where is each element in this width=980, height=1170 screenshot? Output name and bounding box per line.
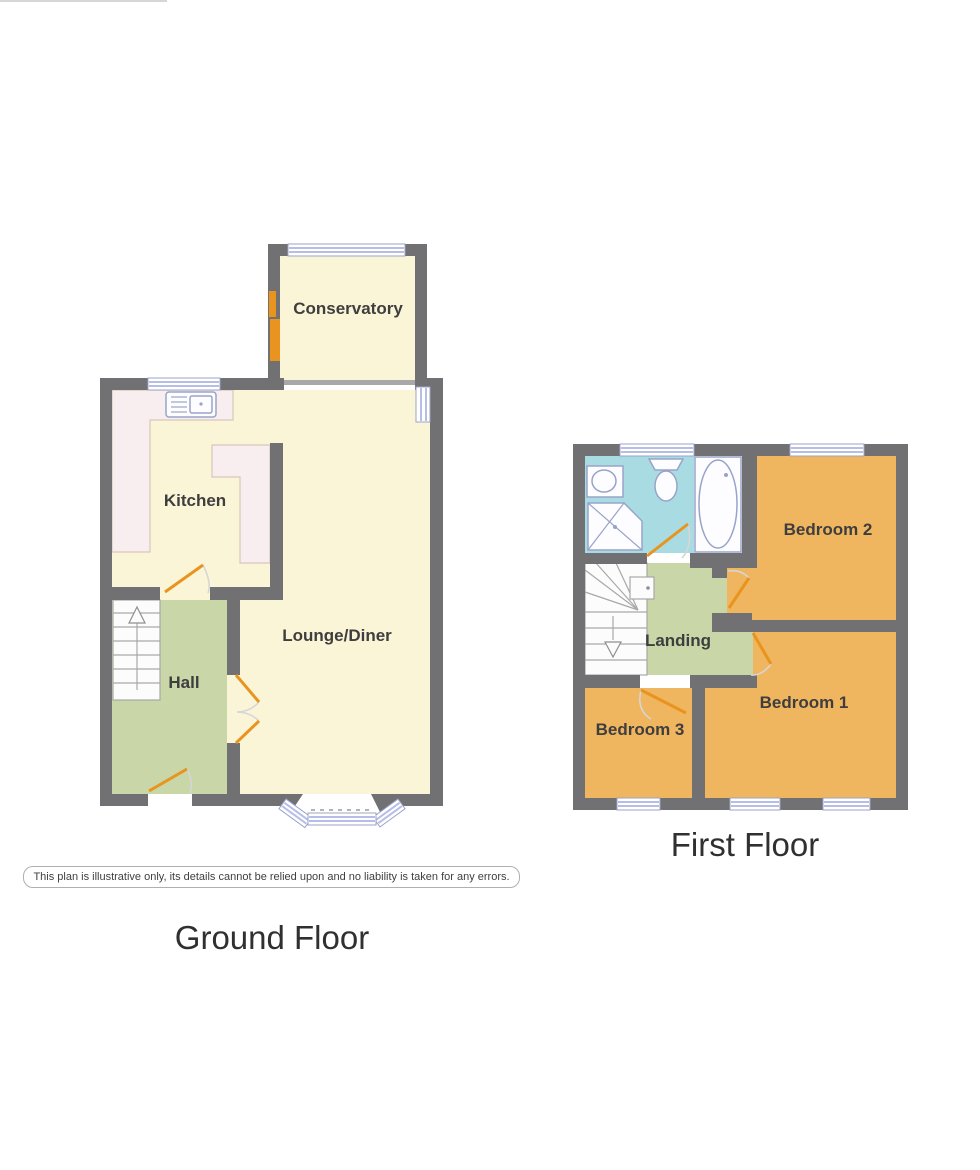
first-floor-title: First Floor bbox=[671, 826, 820, 864]
wall-segment bbox=[270, 443, 283, 587]
wall-segment bbox=[268, 244, 288, 256]
room-label-bedroom1: Bedroom 1 bbox=[760, 693, 849, 712]
wall-segment bbox=[870, 798, 908, 810]
wall-segment bbox=[100, 794, 148, 806]
disclaimer-note: This plan is illustrative only, its deta… bbox=[23, 866, 520, 888]
floorplan-page: Conservatory Kitchen Lounge/Diner Hall bbox=[0, 0, 980, 1170]
sink-icon bbox=[587, 466, 623, 497]
wall-segment bbox=[580, 675, 640, 688]
room-label-lounge: Lounge/Diner bbox=[282, 626, 392, 645]
floor-plan-canvas: Conservatory Kitchen Lounge/Diner Hall bbox=[0, 0, 980, 1170]
wall-segment bbox=[573, 444, 585, 810]
bedroom3-floor bbox=[585, 688, 692, 798]
wall-segment bbox=[192, 794, 285, 806]
room-label-bedroom3: Bedroom 3 bbox=[596, 720, 685, 739]
wall-segment bbox=[694, 444, 790, 456]
wall-segment bbox=[896, 444, 908, 810]
wall-segment bbox=[690, 553, 757, 568]
wall-segment bbox=[227, 743, 240, 794]
gf-staircase bbox=[113, 600, 160, 700]
room-label-hall: Hall bbox=[168, 673, 199, 692]
wall-segment bbox=[210, 587, 283, 600]
wall-segment bbox=[100, 587, 160, 600]
bedroom1-window bbox=[823, 798, 870, 810]
kitchen-sink-icon bbox=[166, 392, 216, 417]
wall-segment bbox=[712, 568, 727, 578]
ground-floor-plan: Conservatory Kitchen Lounge/Diner Hall bbox=[100, 244, 443, 828]
landing-cupboard bbox=[630, 577, 654, 599]
room-label-bedroom2: Bedroom 2 bbox=[784, 520, 873, 539]
conservatory-door bbox=[270, 319, 280, 361]
bedroom2-window bbox=[790, 444, 864, 456]
conservatory-door bbox=[269, 291, 276, 317]
wall-segment bbox=[405, 244, 427, 256]
wall-segment bbox=[752, 620, 896, 632]
bedroom1-window bbox=[730, 798, 780, 810]
ff-staircase bbox=[585, 563, 654, 675]
wall-segment bbox=[573, 798, 617, 810]
wall-segment bbox=[742, 456, 757, 568]
wall-segment bbox=[220, 378, 284, 390]
wall-segment bbox=[690, 675, 757, 688]
wall-segment bbox=[227, 600, 240, 675]
room-label-landing: Landing bbox=[645, 631, 711, 650]
wall-segment bbox=[430, 378, 443, 806]
wall-segment bbox=[415, 256, 427, 384]
wall-segment bbox=[692, 688, 705, 798]
bedroom3-window bbox=[617, 798, 660, 810]
room-divider-line bbox=[284, 380, 415, 385]
wall-segment bbox=[660, 798, 730, 810]
lounge-side-window bbox=[416, 387, 430, 422]
bath-icon bbox=[694, 456, 742, 553]
kitchen-window bbox=[148, 378, 220, 390]
landing-floor-extension bbox=[705, 632, 753, 675]
ground-floor-title: Ground Floor bbox=[175, 919, 369, 957]
conservatory-window bbox=[288, 244, 405, 256]
conservatory-floor bbox=[280, 256, 415, 380]
first-floor-plan: Bedroom 2 Landing Bedroom 3 Bedroom 1 bbox=[573, 444, 908, 810]
wall-segment bbox=[780, 798, 823, 810]
wall-segment bbox=[712, 613, 752, 632]
room-label-kitchen: Kitchen bbox=[164, 491, 226, 510]
room-label-conservatory: Conservatory bbox=[293, 299, 403, 318]
wall-segment bbox=[580, 553, 647, 564]
bathroom-window bbox=[620, 444, 694, 456]
